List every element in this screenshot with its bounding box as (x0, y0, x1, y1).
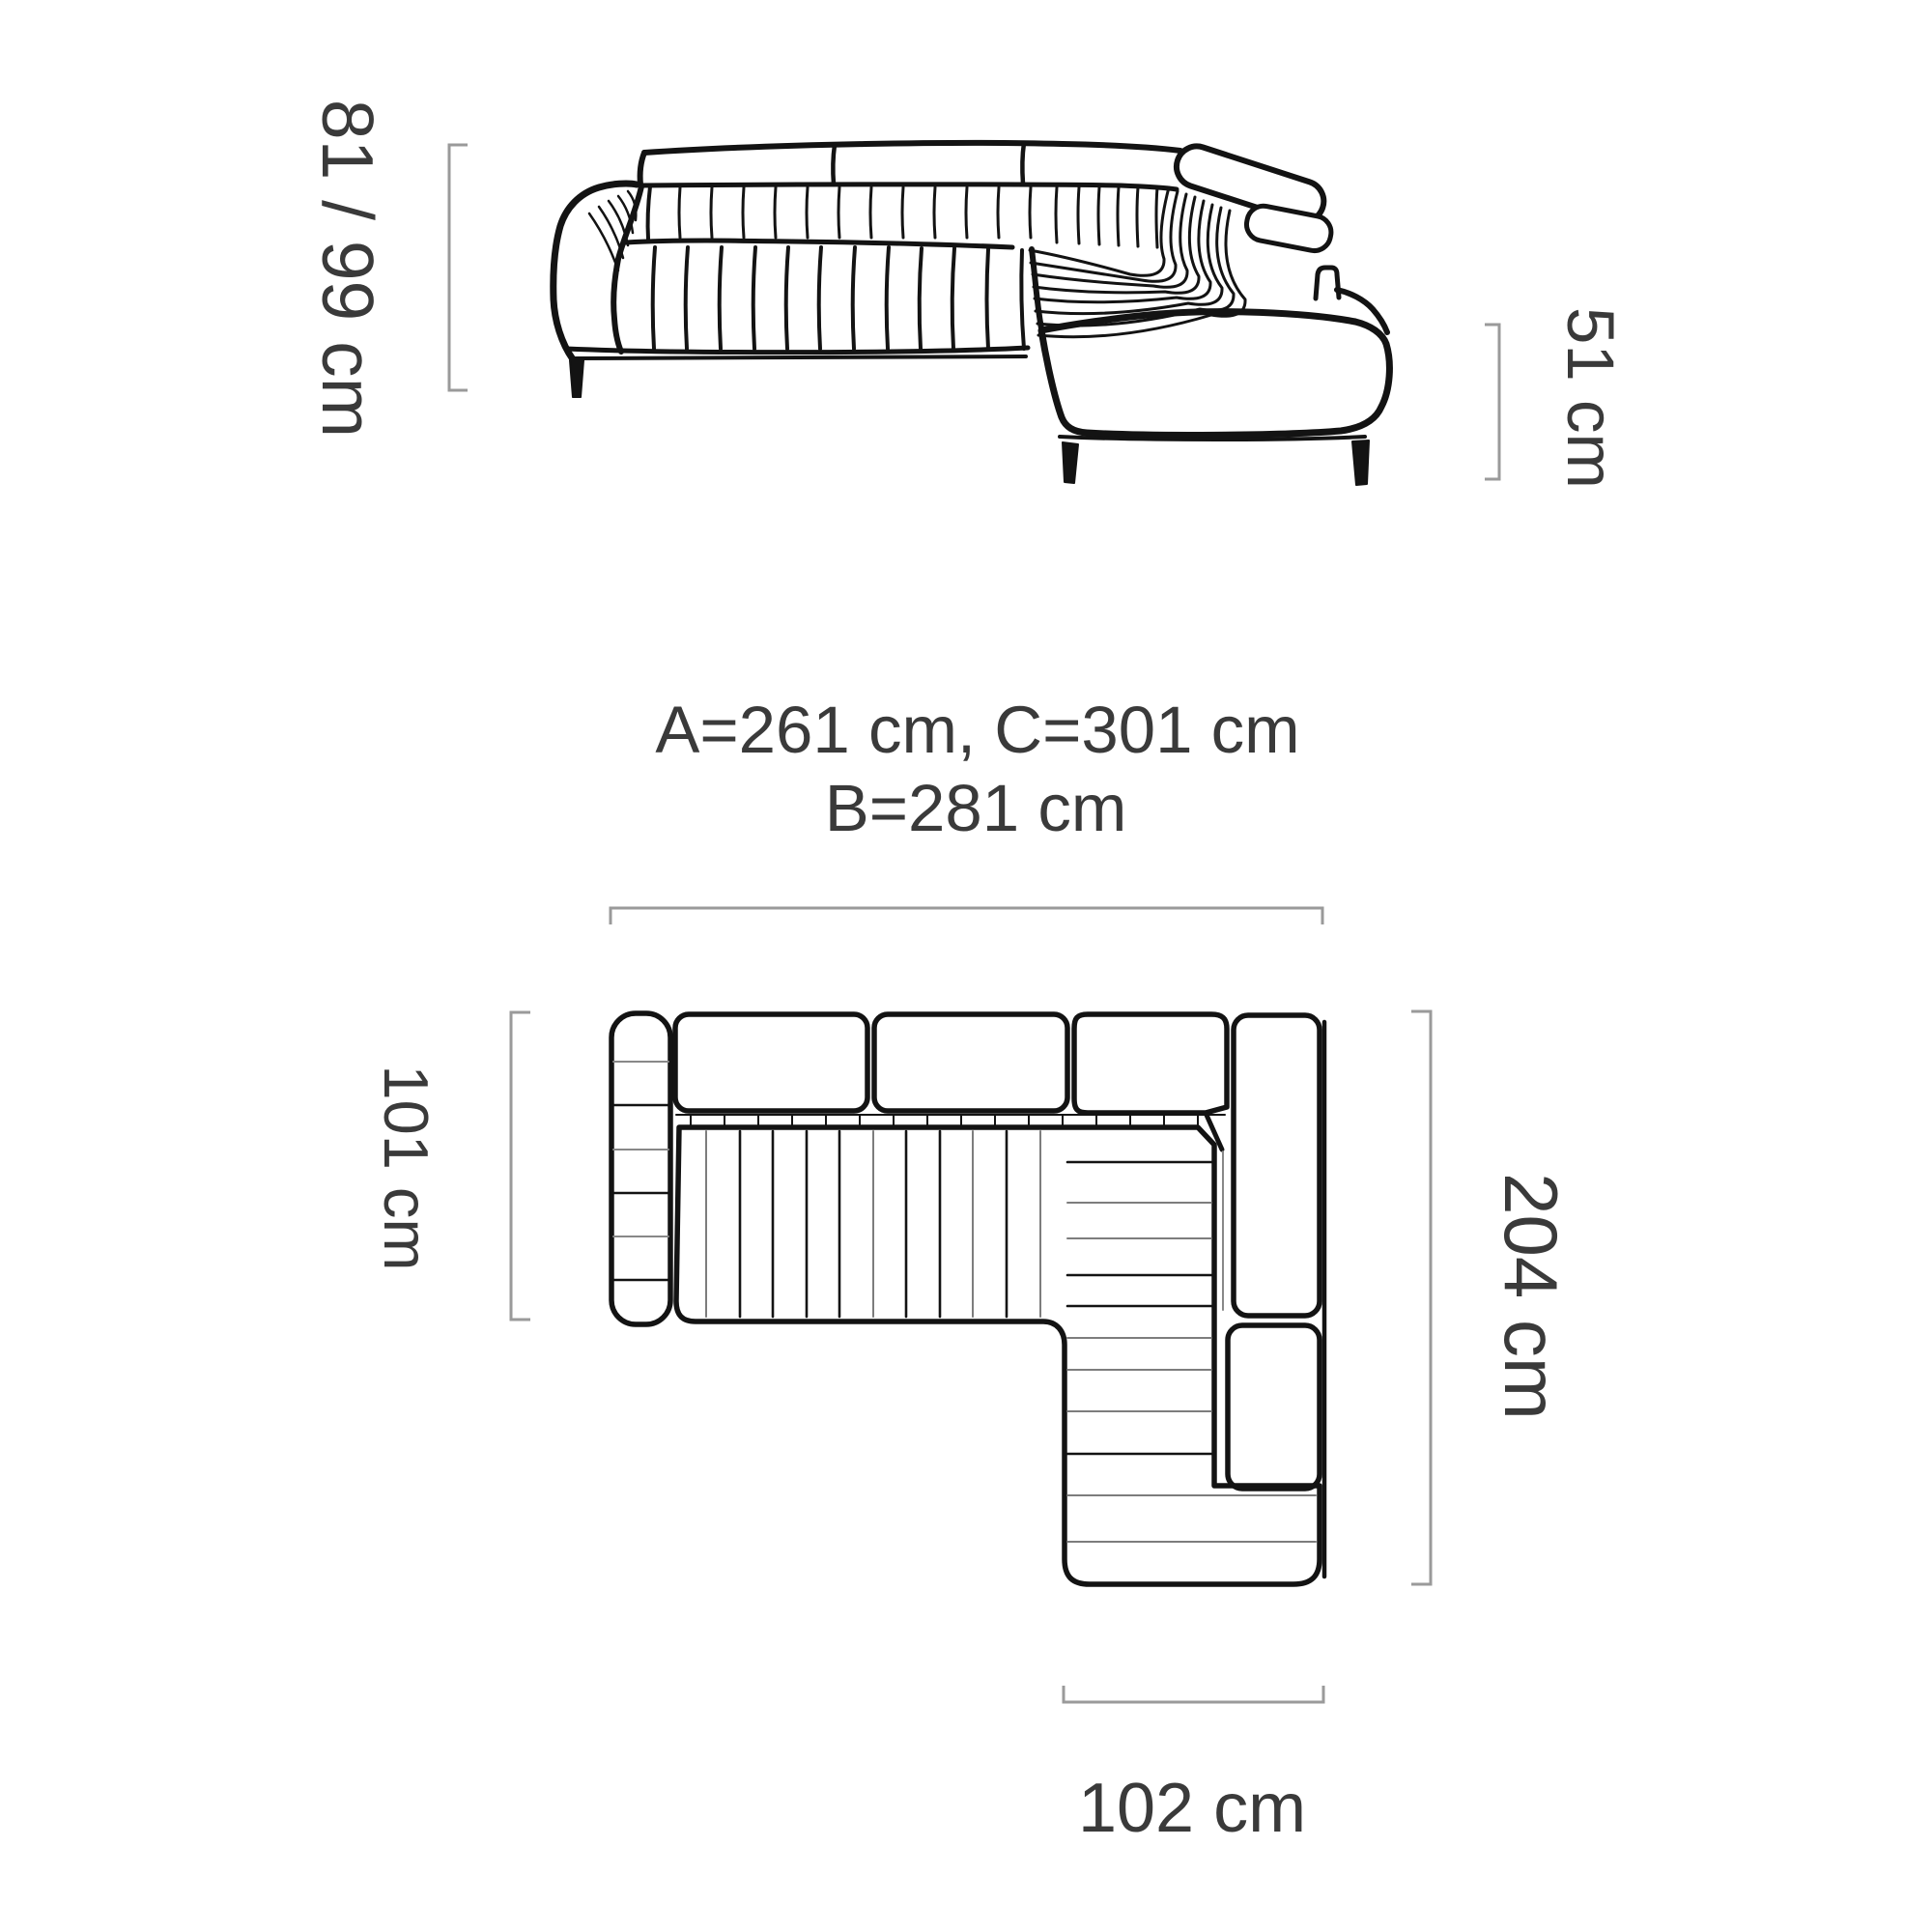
svg-text:51 cm: 51 cm (1553, 307, 1628, 489)
svg-text:A=261 cm, C=301 cm: A=261 cm, C=301 cm (655, 693, 1299, 767)
svg-text:102 cm: 102 cm (1078, 1770, 1306, 1847)
svg-text:101 cm: 101 cm (371, 1065, 441, 1270)
svg-text:81 / 99 cm: 81 / 99 cm (307, 99, 388, 438)
svg-text:B=281 cm: B=281 cm (825, 771, 1127, 845)
svg-text:204 cm: 204 cm (1489, 1173, 1574, 1420)
